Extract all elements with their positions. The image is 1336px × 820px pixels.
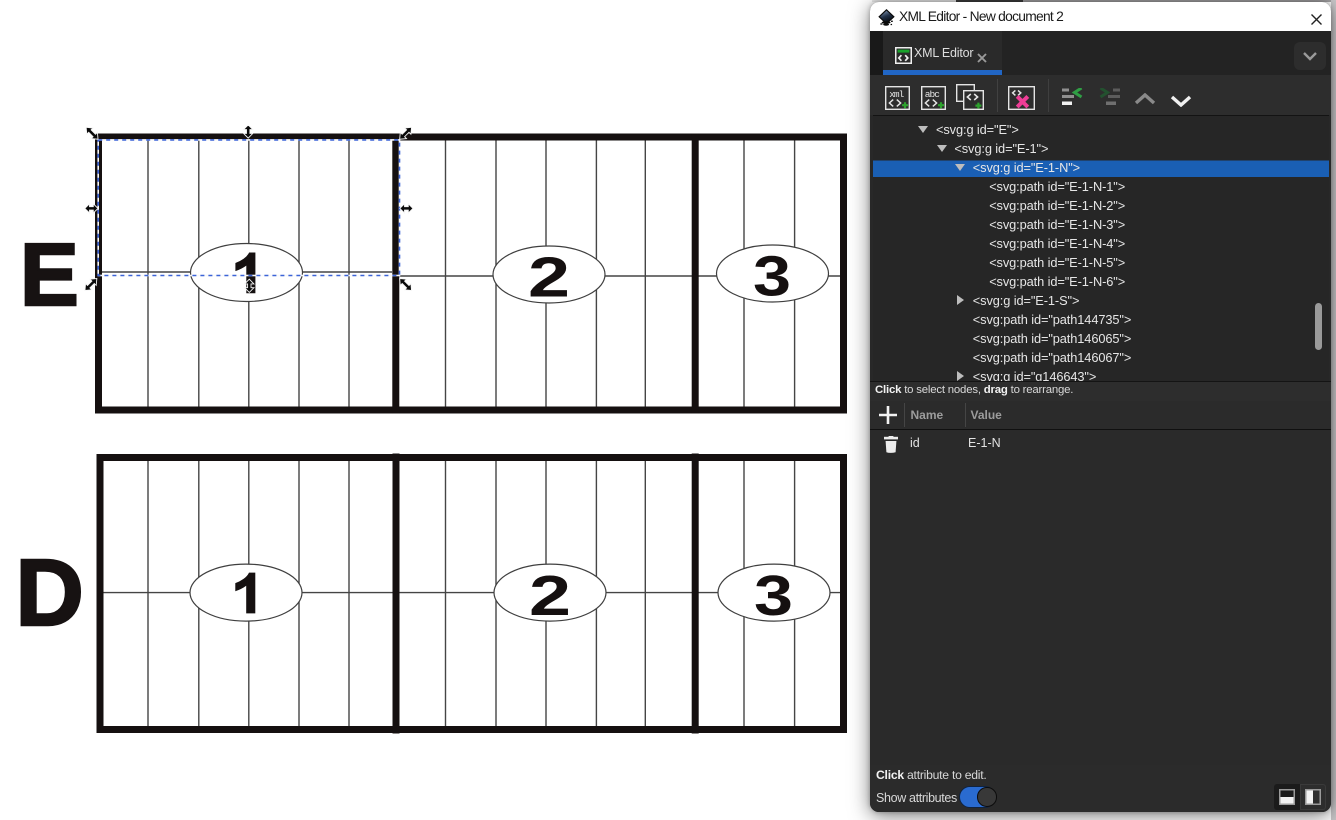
svg-text:E: E (20, 225, 79, 324)
svg-text:xml: xml (889, 89, 904, 100)
svg-text:abc: abc (925, 89, 940, 100)
svg-text:2: 2 (528, 245, 570, 309)
svg-text:3: 3 (753, 245, 791, 309)
svg-text:D: D (16, 540, 84, 646)
svg-text:2: 2 (529, 564, 571, 628)
svg-text:3: 3 (754, 564, 793, 628)
